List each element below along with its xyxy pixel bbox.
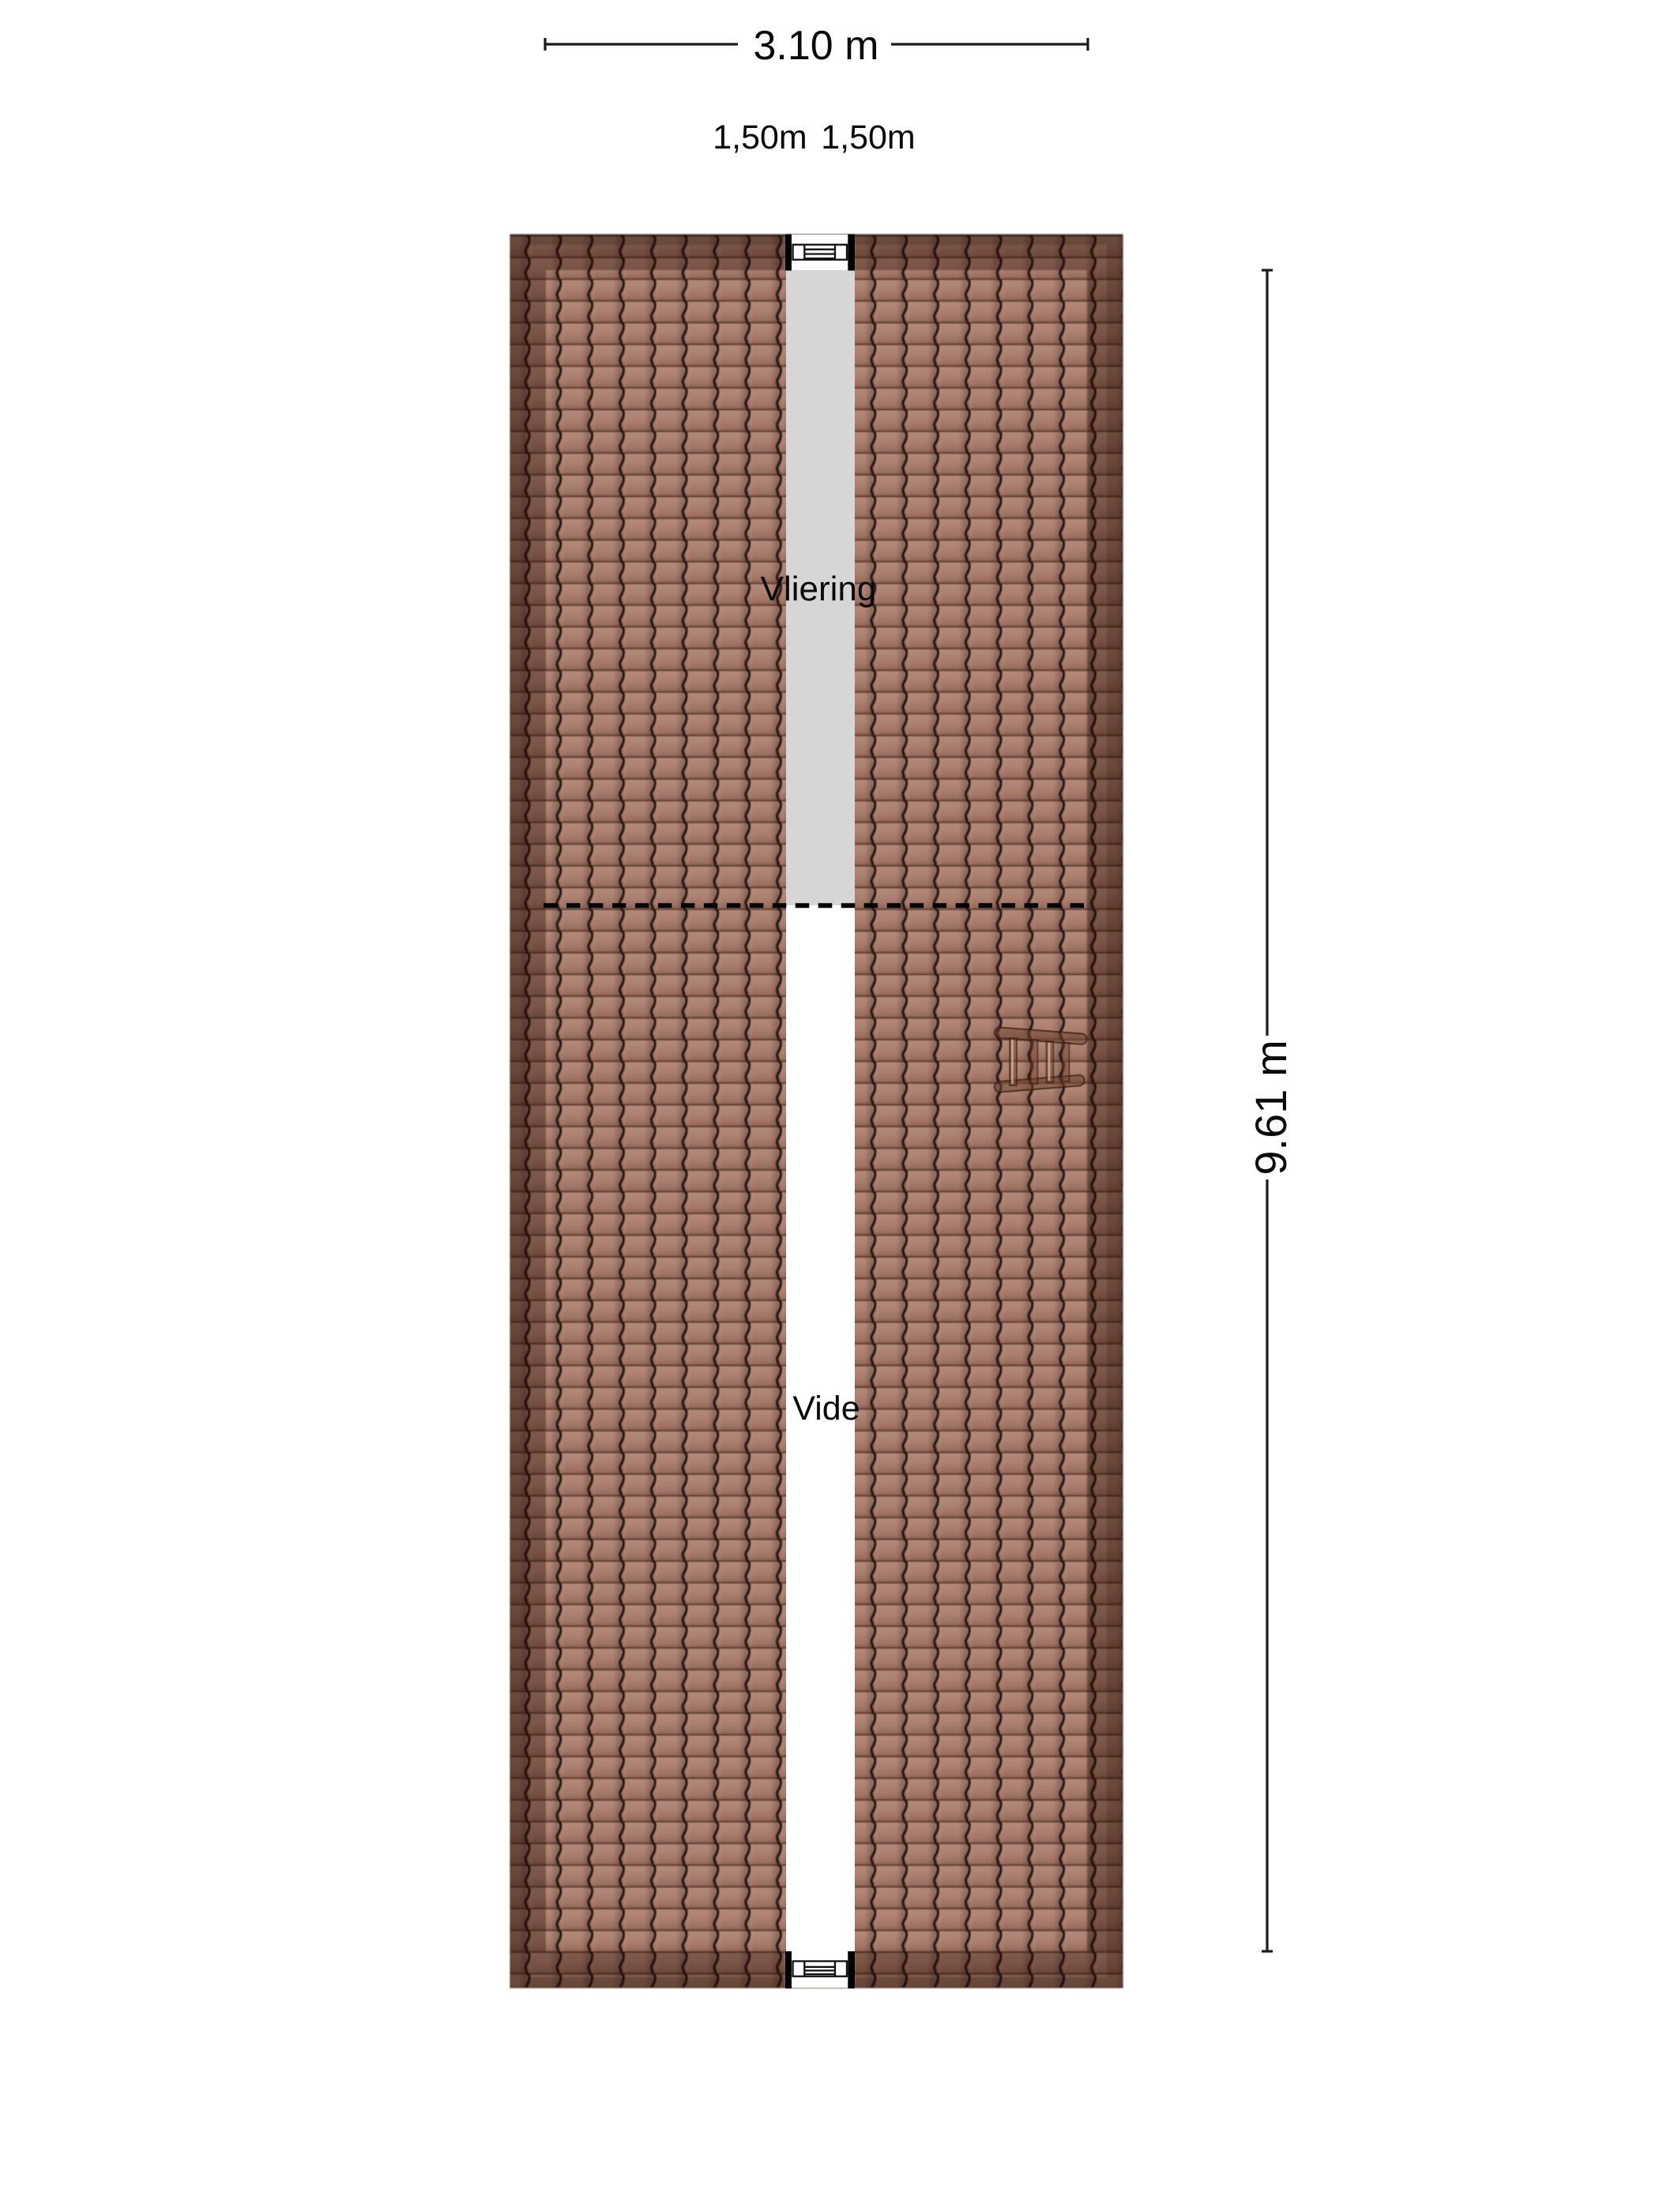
svg-text:3.10 m: 3.10 m: [754, 23, 879, 69]
svg-text:9.61 m: 9.61 m: [1246, 1040, 1296, 1175]
svg-text:Vide: Vide: [792, 1390, 860, 1428]
svg-text:1,50m: 1,50m: [821, 118, 916, 156]
svg-text:Vliering: Vliering: [761, 570, 877, 608]
svg-text:1,50m: 1,50m: [713, 118, 807, 156]
